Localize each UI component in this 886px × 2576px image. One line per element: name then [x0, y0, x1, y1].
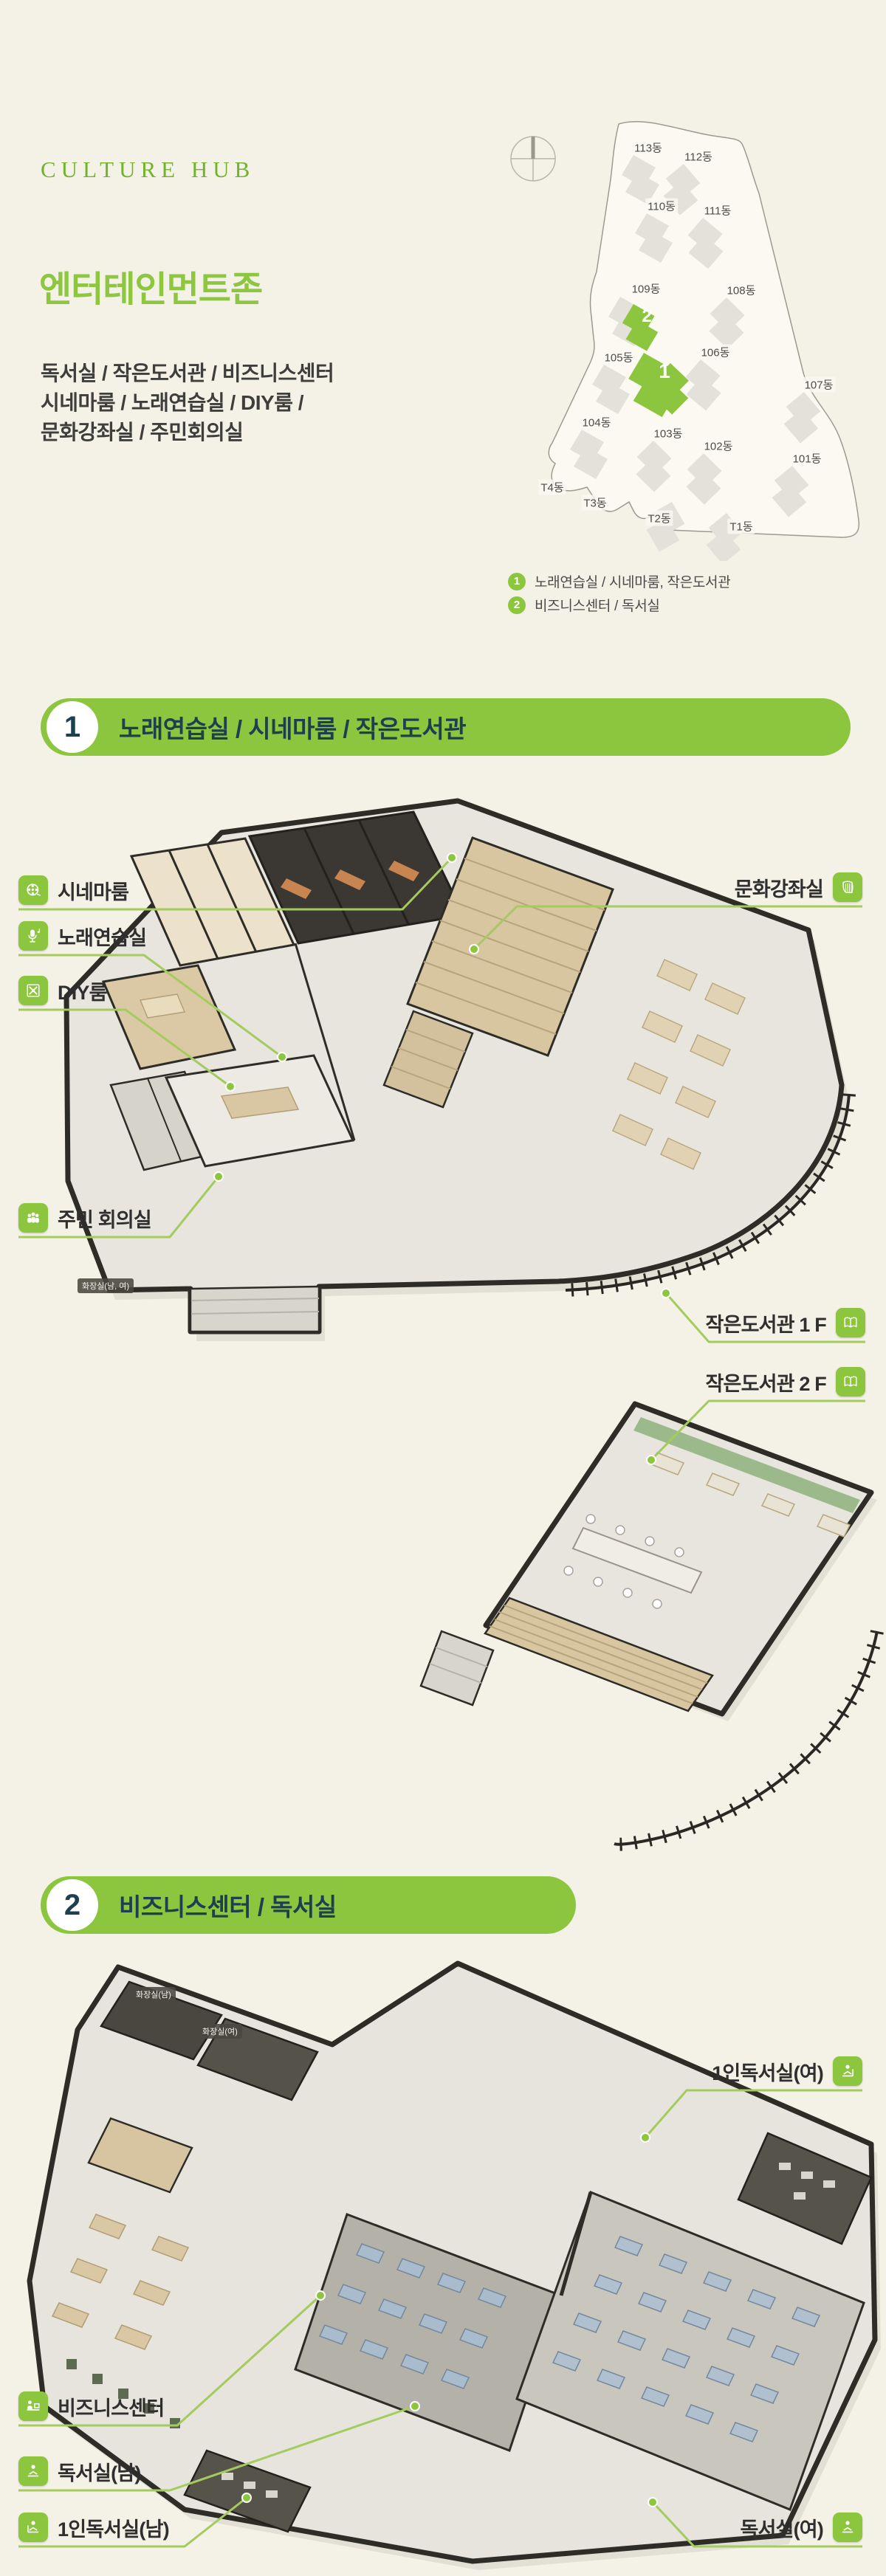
single-reading-men-icon: [18, 2513, 48, 2542]
svg-text:1: 1: [659, 359, 670, 382]
building-label-107: 107동: [803, 377, 836, 393]
building-label-t1: T1동: [727, 519, 755, 534]
business-center-icon: [18, 2391, 48, 2421]
label-culture-text: 문화강좌실: [735, 873, 823, 902]
plan1-restroom-tag: 화장실(남, 여): [78, 1278, 134, 1293]
label-single-reading-women-text: 1인독서실(여): [712, 2057, 823, 2086]
label-library-1f: 작은도서관 1 F: [705, 1308, 865, 1337]
building-label-113: 113동: [632, 140, 664, 156]
label-business-center-text: 비즈니스센터: [58, 2392, 164, 2421]
building-label-t3: T3동: [581, 495, 608, 511]
building-label-111: 111동: [702, 203, 734, 218]
description-line-2: 시네마룸 / 노래연습실 / DIY룸 /: [41, 388, 334, 418]
building-label-112: 112동: [682, 149, 715, 165]
label-library-2f-text: 작은도서관 2 F: [705, 1368, 826, 1397]
building-label-110: 110동: [645, 199, 678, 214]
label-meeting: 주민 회의실: [18, 1203, 151, 1233]
legend-text-1: 노래연습실 / 시네마룸, 작은도서관: [535, 571, 730, 591]
building-label-109: 109동: [630, 281, 663, 297]
planb-restroom-men-tag: 화장실(남): [131, 1987, 176, 2002]
culture-harp-icon: [833, 872, 862, 902]
label-diy: DIY룸: [18, 976, 107, 1005]
building-label-103: 103동: [652, 426, 685, 441]
building-label-106: 106동: [699, 345, 732, 360]
label-single-reading-men-text: 1인독서실(남): [58, 2513, 169, 2542]
facility-description: 독서실 / 작은도서관 / 비즈니스센터 시네마룸 / 노래연습실 / DIY룸…: [41, 359, 334, 447]
label-diy-text: DIY룸: [58, 977, 107, 1005]
reading-women-icon: [833, 2513, 862, 2542]
meeting-icon: [18, 1203, 48, 1233]
section-2-title: 비즈니스센터 / 독서실: [119, 1887, 337, 1923]
plan2f-entrance-steps: [421, 1631, 493, 1705]
label-library-1f-text: 작은도서관 1 F: [705, 1309, 826, 1337]
section-1-number: 1: [47, 701, 98, 753]
label-single-reading-men: 1인독서실(남): [18, 2513, 169, 2542]
legend-number-1: 1: [508, 573, 526, 590]
floorplan-1f: [0, 768, 886, 1358]
label-karaoke: 노래연습실: [18, 921, 146, 951]
label-cinema: 시네마룸: [18, 875, 128, 905]
label-single-reading-women: 1인독서실(여): [712, 2056, 862, 2086]
planb-restroom-women-tag: 화장실(여): [198, 2024, 242, 2039]
cinema-icon: [18, 875, 48, 905]
section-1-banner: 1 노래연습실 / 시네마룸 / 작은도서관: [41, 698, 851, 756]
label-reading-men: 독서실(남): [18, 2456, 141, 2486]
diy-icon: [18, 976, 48, 1005]
label-karaoke-text: 노래연습실: [58, 922, 146, 951]
label-meeting-text: 주민 회의실: [58, 1204, 151, 1233]
section-1-title: 노래연습실 / 시네마룸 / 작은도서관: [119, 709, 466, 745]
library-book-icon: [836, 1367, 865, 1397]
label-library-2f: 작은도서관 2 F: [705, 1367, 865, 1397]
brand-logotype: CULTURE HUB: [41, 156, 255, 183]
karaoke-icon: [18, 921, 48, 951]
building-label-108: 108동: [725, 283, 758, 298]
building-label-101: 101동: [791, 451, 824, 466]
label-culture: 문화강좌실: [735, 872, 862, 902]
library-book-icon: [836, 1308, 865, 1337]
building-label-104: 104동: [580, 415, 614, 430]
building-label-102: 102동: [702, 438, 735, 454]
svg-text:2: 2: [642, 306, 651, 326]
single-reading-women-icon: [833, 2056, 862, 2086]
description-line-1: 독서실 / 작은도서관 / 비즈니스센터: [41, 359, 334, 388]
reading-men-icon: [18, 2456, 48, 2486]
legend-item-1: 1 노래연습실 / 시네마룸, 작은도서관: [508, 571, 730, 591]
legend-number-2: 2: [508, 596, 526, 614]
building-label-t2: T2동: [645, 511, 673, 526]
plan1-entrance-steps: [190, 1287, 319, 1332]
page-title: 엔터테인먼트존: [39, 260, 262, 311]
label-reading-women: 독서실(여): [740, 2513, 862, 2542]
building-label-t4: T4동: [538, 480, 566, 495]
description-line-3: 문화강좌실 / 주민회의실: [41, 418, 334, 447]
floorplan-2f: [0, 1388, 886, 1890]
legend-item-2: 2 비즈니스센터 / 독서실: [508, 595, 660, 615]
compass-icon: [511, 137, 555, 181]
label-cinema-text: 시네마룸: [58, 876, 128, 905]
building-label-105: 105동: [602, 350, 636, 365]
label-business-center: 비즈니스센터: [18, 2391, 164, 2421]
label-reading-men-text: 독서실(남): [58, 2457, 141, 2486]
label-reading-women-text: 독서실(여): [740, 2513, 823, 2542]
culture-hub-infographic: { "header": { "brand": "CULTURE HUB", "t…: [0, 0, 886, 2576]
legend-text-2: 비즈니스센터 / 독서실: [535, 595, 660, 615]
